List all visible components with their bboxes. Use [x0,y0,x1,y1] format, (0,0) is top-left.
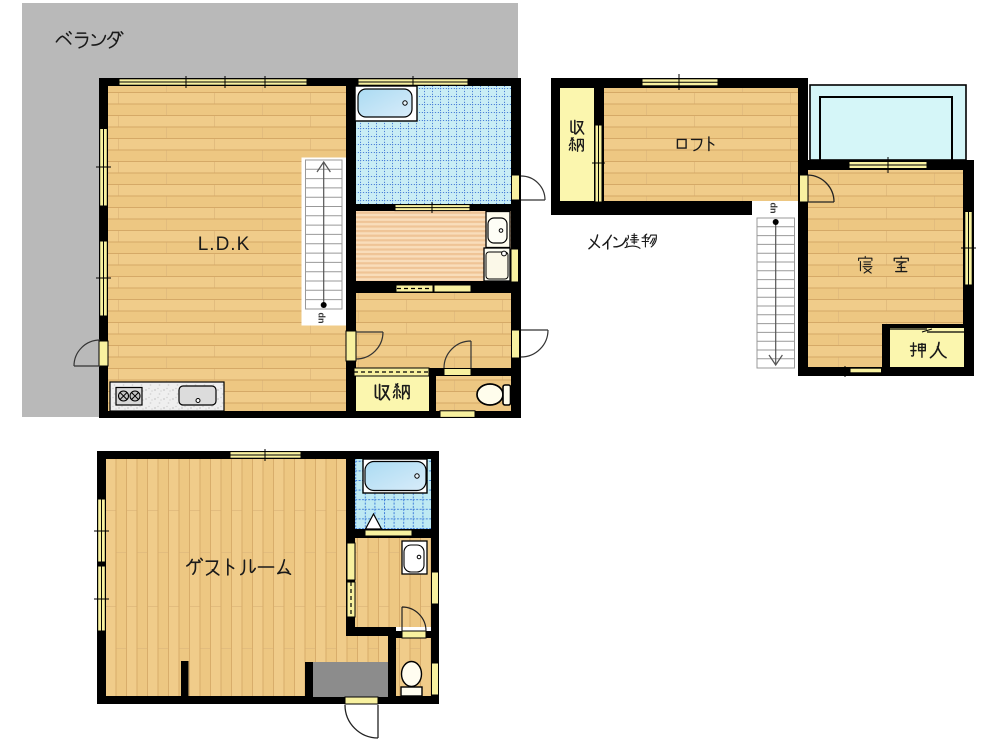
svg-text:L.D.K: L.D.K [198,234,251,255]
svg-text:up: up [316,312,326,323]
svg-text:up: up [768,202,778,213]
